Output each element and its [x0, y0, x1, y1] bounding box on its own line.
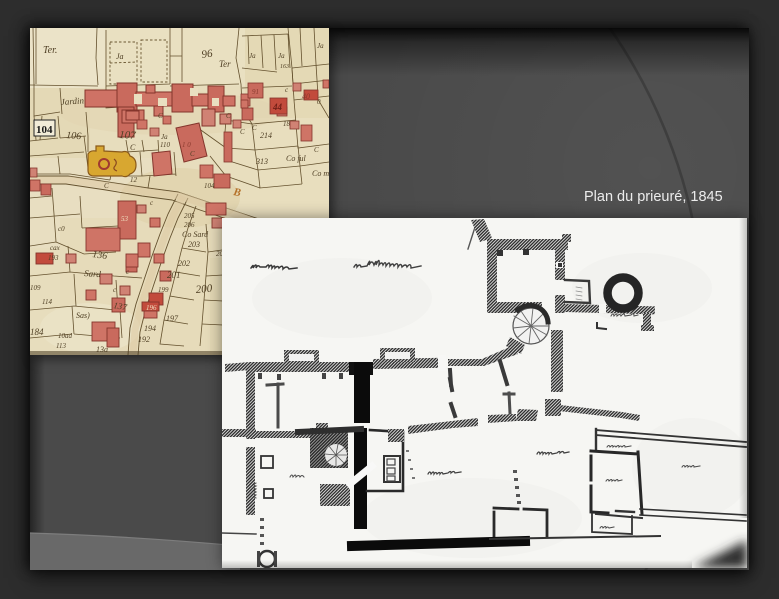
svg-text:53: 53: [121, 215, 129, 223]
svg-text:C: C: [252, 124, 257, 132]
svg-text:104: 104: [204, 182, 215, 190]
svg-text:184: 184: [30, 327, 44, 337]
svg-text:C: C: [130, 143, 136, 152]
svg-text:c0: c0: [58, 225, 65, 233]
svg-text:197: 197: [166, 314, 179, 323]
svg-text:C: C: [226, 112, 231, 120]
svg-text:114: 114: [42, 298, 52, 306]
svg-text:203: 203: [188, 240, 200, 249]
svg-text:Jardin: Jardin: [60, 95, 84, 107]
svg-text:Ja: Ja: [278, 52, 285, 60]
svg-text:1 0: 1 0: [182, 141, 191, 149]
svg-text:18: 18: [283, 120, 291, 128]
svg-text:0: 0: [317, 98, 321, 106]
svg-text:Sas): Sas): [76, 311, 90, 320]
svg-text:106: 106: [66, 130, 82, 142]
svg-text:Ter.: Ter.: [43, 45, 57, 56]
svg-text:96: 96: [201, 47, 214, 60]
svg-text:Ter: Ter: [219, 59, 231, 69]
svg-text:193: 193: [48, 254, 59, 262]
svg-text:C: C: [190, 150, 195, 158]
svg-text:Ja: Ja: [161, 133, 168, 141]
svg-text:200: 200: [195, 283, 213, 296]
svg-text:12: 12: [130, 176, 138, 184]
svg-text:196: 196: [146, 304, 157, 312]
svg-text:192: 192: [138, 335, 150, 344]
svg-text:163: 163: [280, 64, 289, 70]
svg-text:Ja: Ja: [116, 52, 124, 61]
svg-text:313: 313: [255, 157, 268, 166]
svg-text:40: 40: [302, 92, 310, 101]
svg-text:202: 202: [178, 259, 190, 268]
svg-text:C: C: [104, 182, 109, 190]
svg-text:Ja: Ja: [249, 52, 256, 60]
svg-text:199: 199: [158, 286, 169, 294]
svg-text:Co ful: Co ful: [286, 154, 307, 163]
svg-text:Co Sard: Co Sard: [182, 230, 209, 239]
svg-text:136: 136: [92, 249, 108, 262]
svg-text:Sard: Sard: [84, 268, 102, 279]
svg-text:C: C: [314, 146, 319, 154]
svg-text:113: 113: [56, 342, 66, 350]
svg-text:44: 44: [272, 102, 283, 112]
svg-text:206: 206: [184, 221, 195, 229]
svg-text:cax: cax: [50, 244, 61, 252]
svg-text:C: C: [240, 128, 245, 136]
svg-text:110: 110: [160, 141, 170, 149]
svg-text:107: 107: [119, 129, 137, 142]
svg-text:205: 205: [184, 212, 195, 220]
svg-text:91: 91: [252, 88, 259, 96]
svg-text:Ja: Ja: [317, 42, 324, 50]
svg-text:109: 109: [30, 284, 41, 292]
svg-text:201: 201: [167, 270, 181, 280]
svg-text:194: 194: [144, 324, 156, 333]
svg-text:214: 214: [260, 131, 272, 140]
svg-text:10ad: 10ad: [58, 332, 73, 340]
svg-text:13a: 13a: [96, 345, 108, 354]
svg-text:104: 104: [36, 124, 53, 136]
svg-text:C: C: [158, 112, 163, 120]
svg-text:Co m: Co m: [312, 169, 329, 178]
